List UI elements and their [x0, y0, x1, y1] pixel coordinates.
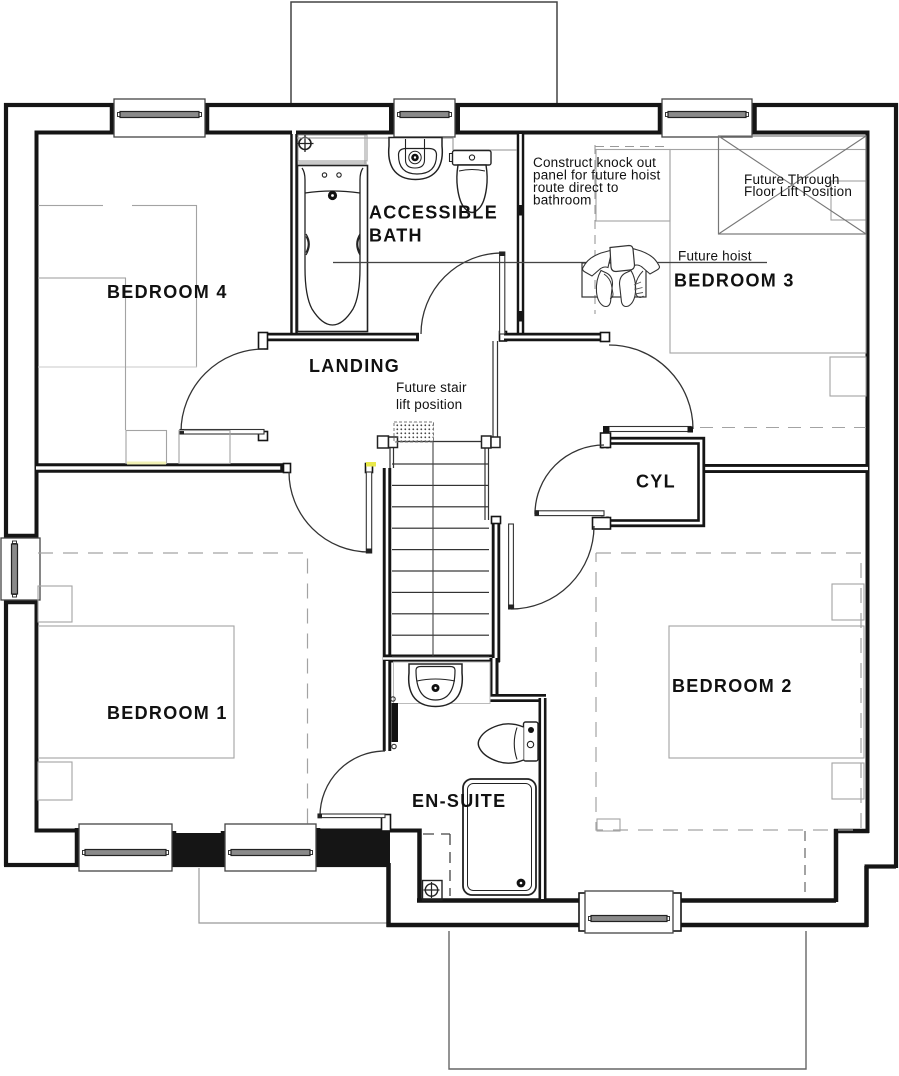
svg-text:LANDING: LANDING — [309, 356, 400, 376]
svg-text:Floor Lift Position: Floor Lift Position — [744, 184, 852, 199]
svg-text:Future hoist: Future hoist — [678, 249, 752, 264]
svg-text:Future stair: Future stair — [396, 380, 467, 395]
svg-text:BEDROOM 3: BEDROOM 3 — [674, 271, 795, 291]
svg-text:ACCESSIBLE: ACCESSIBLE — [369, 203, 498, 223]
svg-text:BEDROOM 1: BEDROOM 1 — [107, 703, 228, 723]
svg-text:BEDROOM 4: BEDROOM 4 — [107, 282, 228, 302]
svg-text:EN-SUITE: EN-SUITE — [412, 791, 506, 811]
svg-text:CYL: CYL — [636, 472, 676, 492]
svg-text:bathroom: bathroom — [533, 193, 592, 208]
svg-text:BATH: BATH — [369, 226, 423, 246]
svg-text:lift position: lift position — [396, 397, 462, 412]
svg-text:BEDROOM 2: BEDROOM 2 — [672, 676, 793, 696]
